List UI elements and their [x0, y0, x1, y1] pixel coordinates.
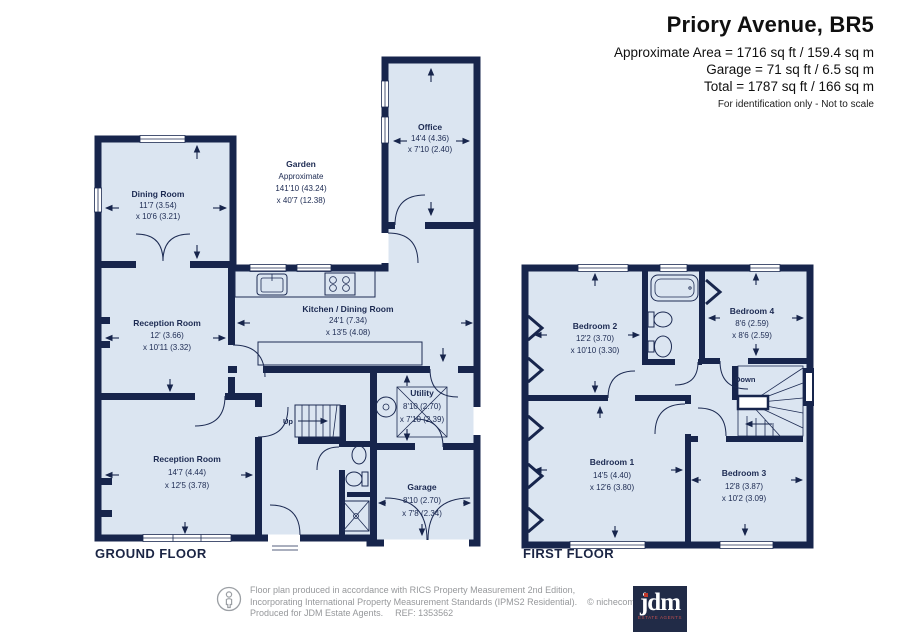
logo-subtext: ESTATE AGENTS [633, 615, 687, 620]
garage-dim2: x 7'8 (2.34) [402, 509, 442, 518]
kitchen-dim2: x 13'5 (4.08) [326, 328, 371, 337]
bedroom4-dim2: x 8'6 (2.59) [732, 331, 772, 340]
bedroom1-dim1: 14'5 (4.40) [593, 471, 631, 480]
ground-floor-title: GROUND FLOOR [95, 546, 207, 561]
stair-box [738, 396, 768, 409]
person-badge-icon [214, 584, 244, 619]
utility-dim1: 8'10 (2.70) [403, 402, 441, 411]
garage-dim1: 8'10 (2.70) [403, 496, 441, 505]
bedroom4-dim1: 8'6 (2.59) [735, 319, 769, 328]
jdm-logo: jdm ESTATE AGENTS [633, 586, 687, 632]
bedroom4-name: Bedroom 4 [730, 306, 775, 316]
floorplan-page: Priory Avenue, BR5 Approximate Area = 17… [0, 0, 900, 636]
bedroom2-name: Bedroom 2 [573, 321, 618, 331]
bedroom1-name: Bedroom 1 [590, 457, 635, 467]
logo-text: jdm [633, 589, 687, 616]
room-label-bedroom-4: Bedroom 4 8'6 (2.59) x 8'6 (2.59) [730, 306, 775, 340]
garden-dim1: 141'10 (43.24) [275, 184, 327, 193]
office-name: Office [418, 122, 442, 132]
utility-dim2: x 7'10 (2.39) [400, 415, 445, 424]
logo-red-dot-icon [644, 593, 648, 597]
dining-room-dim1: 11'7 (3.54) [139, 201, 177, 210]
reception1-name: Reception Room [133, 318, 201, 328]
up-label: Up [283, 417, 293, 426]
bedroom3-dim1: 12'8 (3.87) [725, 482, 763, 491]
ground-floor-plan: Dining Room 11'7 (3.54) x 10'6 (3.21) Ga… [85, 55, 485, 565]
first-floor-plan: Bedroom 2 12'2 (3.70) x 10'10 (3.30) Bed… [520, 258, 815, 553]
utility-name: Utility [410, 388, 434, 398]
room-label-garage: Garage 8'10 (2.70) x 7'8 (2.34) [402, 482, 442, 518]
gf-exterior-walls [98, 60, 477, 543]
reception1-dim2: x 10'11 (3.32) [143, 343, 191, 352]
dining-room-name: Dining Room [132, 189, 185, 199]
reception1-dim1: 12' (3.66) [150, 331, 184, 340]
room-label-bedroom-1: Bedroom 1 14'5 (4.40) x 12'6 (3.80) [590, 457, 635, 492]
reception2-name: Reception Room [153, 454, 221, 464]
room-label-bedroom-2: Bedroom 2 12'2 (3.70) x 10'10 (3.30) [571, 321, 620, 355]
down-label: Down [735, 375, 756, 384]
reception2-dim1: 14'7 (4.44) [168, 468, 206, 477]
kitchen-name: Kitchen / Dining Room [302, 304, 394, 314]
approximate-area: Approximate Area = 1716 sq ft / 159.4 sq… [614, 44, 874, 61]
bedroom1-dim2: x 12'6 (3.80) [590, 483, 635, 492]
kitchen-dim1: 24'1 (7.34) [329, 316, 367, 325]
first-floor-title: FIRST FLOOR [523, 546, 614, 561]
dining-room-dim2: x 10'6 (3.21) [136, 212, 181, 221]
disclaimer-line2: Incorporating International Property Mea… [250, 597, 577, 607]
bedroom2-dim1: 12'2 (3.70) [576, 334, 614, 343]
bedroom3-name: Bedroom 3 [722, 468, 767, 478]
identification-note: For identification only - Not to scale [614, 99, 874, 110]
disclaimer-line1: Floor plan produced in accordance with R… [250, 585, 660, 597]
bedroom2-dim2: x 10'10 (3.30) [571, 346, 620, 355]
garage-area: Garage = 71 sq ft / 6.5 sq m [614, 61, 874, 78]
garden-note: Approximate [279, 172, 324, 181]
reference-number: REF: 1353562 [395, 608, 453, 618]
bedroom3-dim2: x 10'2 (3.09) [722, 494, 767, 503]
total-area: Total = 1787 sq ft / 166 sq m [614, 78, 874, 95]
room-label-garden: Garden Approximate 141'10 (43.24) x 40'7… [275, 159, 327, 205]
office-dim2: x 7'10 (2.40) [408, 145, 453, 154]
disclaimer: Floor plan produced in accordance with R… [250, 585, 660, 620]
header: Priory Avenue, BR5 Approximate Area = 17… [614, 12, 874, 110]
office-dim1: 14'4 (4.36) [411, 134, 449, 143]
produced-for: Produced for JDM Estate Agents. [250, 608, 383, 618]
garden-name: Garden [286, 159, 316, 169]
garage-name: Garage [407, 482, 437, 492]
reception2-dim2: x 12'5 (3.78) [165, 481, 210, 490]
page-title: Priory Avenue, BR5 [614, 12, 874, 38]
room-label-bedroom-3: Bedroom 3 12'8 (3.87) x 10'2 (3.09) [722, 468, 767, 503]
garden-dim2: x 40'7 (12.38) [277, 196, 326, 205]
